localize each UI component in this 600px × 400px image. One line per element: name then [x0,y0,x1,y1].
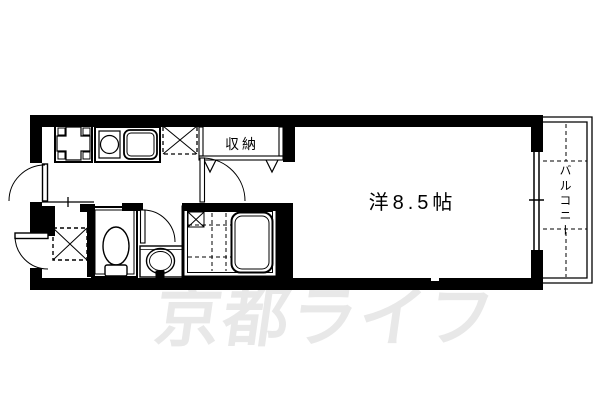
bath-floor-markings [188,213,231,271]
unit-bath [183,207,277,277]
room-door-swing-arc [204,158,245,201]
wash-basin-bowl-inner [150,252,172,271]
washroom-door-leaf [141,210,146,243]
bathtub-inner [235,216,269,269]
exterior-storage-door [15,233,48,269]
floor-plan-drawing [0,0,600,400]
refrigerator-space [163,126,197,154]
wash-basin [140,246,183,278]
burner-circle [101,136,119,154]
wall-right-upper [531,115,543,152]
folding-door-mark-left [204,160,216,172]
kitchen-stove [55,125,92,162]
washroom-door [141,210,176,243]
stove-corner-2 [83,128,90,135]
bathtub [232,213,273,273]
wash-basin-faucet [156,271,164,278]
entrance-door [9,164,48,201]
entrance-door-leaf [43,164,48,201]
stove-cross [57,127,90,160]
refrigerator-x [163,126,197,154]
wall-right-lower [531,250,543,290]
room-door-leaf [200,158,205,202]
stove-corner-1 [58,128,65,135]
washing-machine-space [53,228,87,260]
kitchen-sink-inner [127,133,154,156]
stove-corner-4 [83,152,90,159]
entrance-door-swing-arc [9,165,45,201]
stove-corner-3 [58,152,65,159]
toilet-bowl [103,227,129,265]
main-room-label: 洋8.5帖 [320,186,505,215]
toilet-tank [105,265,127,276]
closet-folding-doors [204,160,278,172]
sliding-window [529,152,544,250]
washroom-door-swing-arc [143,210,175,242]
floor-plan: 京都ライフ [0,0,600,400]
storage-door-swing-arc [15,236,48,269]
toilet-room [92,207,137,277]
balcony-label: バルコニー [557,164,574,248]
kitchen-sink [124,130,157,159]
washing-machine-x [53,228,87,260]
kitchen [55,125,197,162]
wall-notch [431,278,439,281]
wall-bathroom-right [277,203,293,290]
kitchen-counter [95,127,160,162]
bathroom-inner [188,212,273,273]
wall-left-mid [30,202,42,236]
storage-door-leaf [15,233,48,239]
folding-door-mark-right [266,160,278,172]
wall-left-upper [30,115,42,163]
wash-basin-bowl [147,249,175,274]
bathroom-outer [183,207,277,277]
closet-label: 収納 [196,134,288,154]
